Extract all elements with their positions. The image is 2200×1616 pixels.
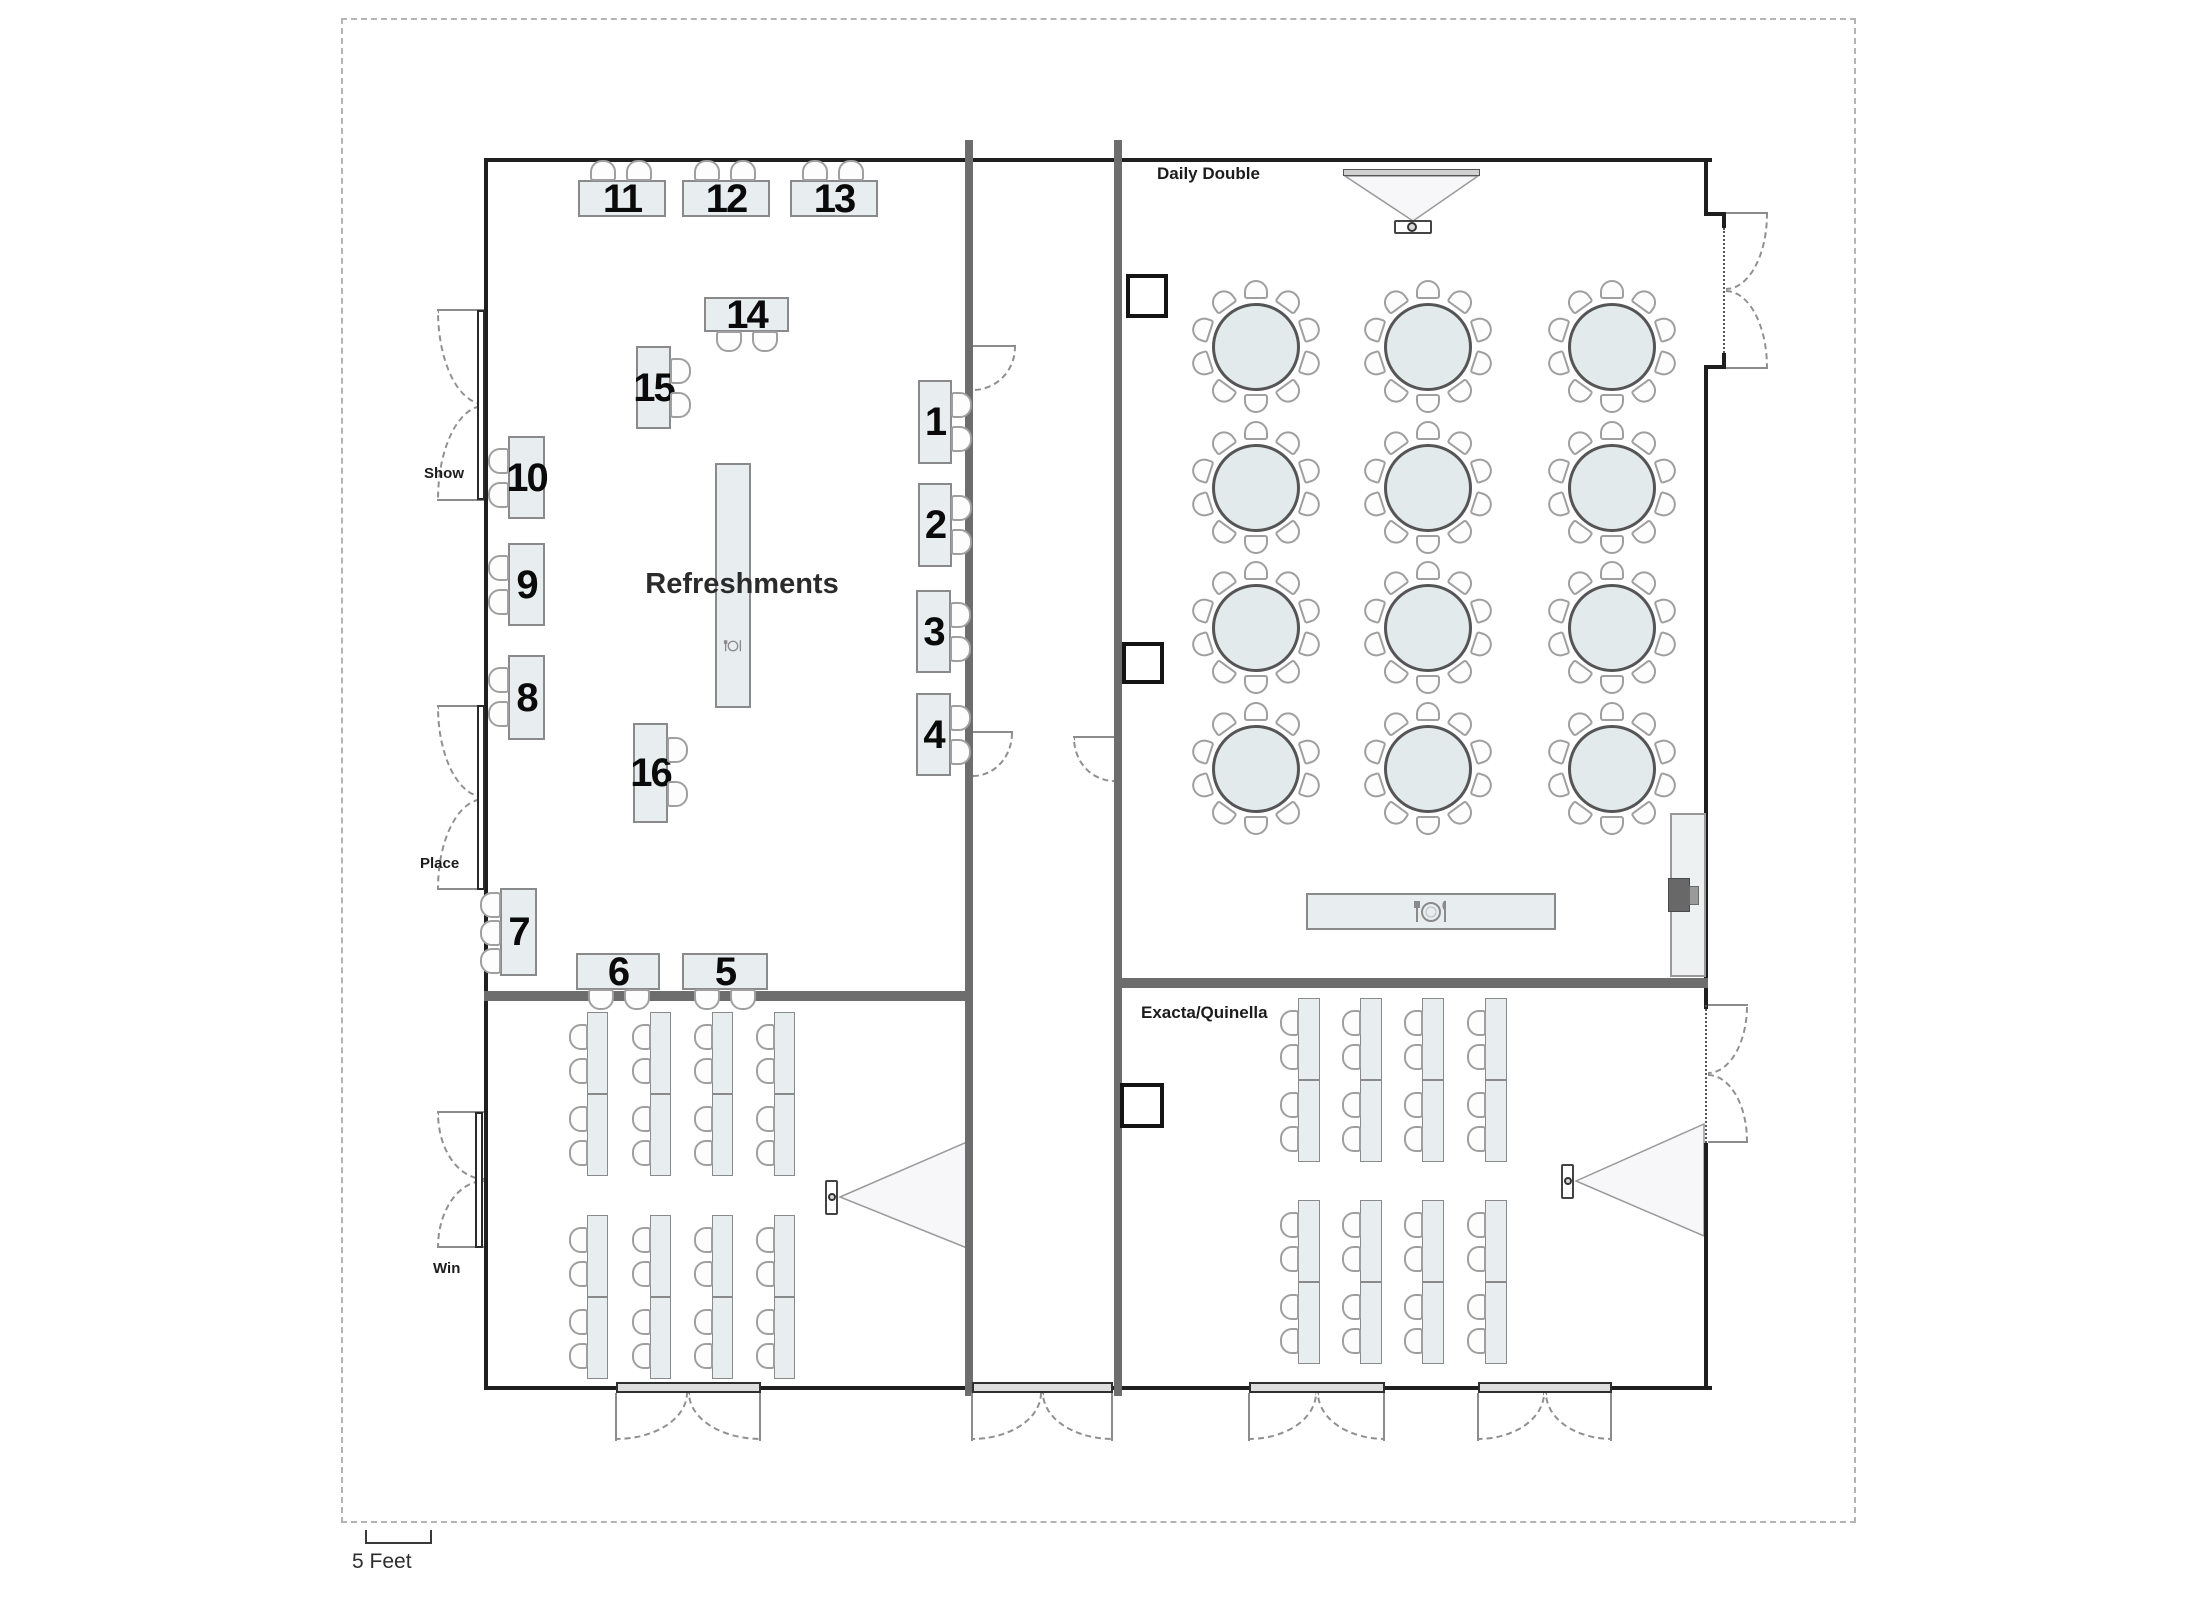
chair [730, 160, 756, 181]
chair [1404, 1246, 1423, 1272]
chair [632, 1058, 651, 1084]
chair [667, 781, 688, 807]
door-label-show: Show [424, 465, 464, 482]
projector-lens-icon [1564, 1177, 1572, 1185]
chair [632, 1343, 651, 1369]
wall-service-box [1126, 274, 1168, 318]
chair [1416, 280, 1440, 299]
round-table [1384, 584, 1472, 672]
classroom-table [1360, 1282, 1382, 1364]
projection-screen [1343, 169, 1480, 176]
chair [1404, 1328, 1423, 1354]
chair [1600, 280, 1624, 299]
chair [632, 1309, 651, 1335]
chair [1342, 1212, 1361, 1238]
chair [951, 495, 972, 521]
double-door [477, 705, 485, 890]
classroom-table [1485, 1200, 1507, 1282]
projector-beam [1576, 1124, 1704, 1236]
chair [802, 160, 828, 181]
exhibit-table-16: 16 [633, 723, 668, 823]
classroom-table [650, 1094, 671, 1176]
chair [1280, 1246, 1299, 1272]
double-door [475, 1112, 483, 1248]
chair [1404, 1212, 1423, 1238]
chair [1404, 1126, 1423, 1152]
chair [632, 1024, 651, 1050]
chair [1600, 421, 1624, 440]
chair [756, 1227, 775, 1253]
place-setting-icon [1412, 899, 1450, 925]
refreshments-label: Refreshments [637, 568, 847, 601]
chair [1342, 1092, 1361, 1118]
chair [1342, 1294, 1361, 1320]
chair [1280, 1328, 1299, 1354]
double-door [1249, 1382, 1385, 1393]
door-leaf-line [1708, 1141, 1748, 1143]
table-number: 14 [726, 295, 767, 335]
table-number: 6 [608, 952, 628, 992]
chair [1600, 561, 1624, 580]
exhibit-table-6: 6 [576, 953, 660, 990]
chair [1404, 1092, 1423, 1118]
chair [1467, 1294, 1486, 1320]
classroom-table [774, 1094, 795, 1176]
classroom-table [712, 1297, 733, 1379]
chair [950, 602, 971, 628]
classroom-table [1360, 1200, 1382, 1282]
chair [488, 701, 509, 727]
door-label-win: Win [433, 1260, 460, 1277]
classroom-table [1360, 1080, 1382, 1162]
classroom-table [587, 1012, 608, 1094]
chair [756, 1309, 775, 1335]
classroom-table [1298, 998, 1320, 1080]
chair [694, 989, 720, 1010]
round-table [1384, 303, 1472, 391]
chair [1467, 1328, 1486, 1354]
floor-plan: 11121314151098716651234 Refreshments Sho… [0, 0, 2200, 1616]
chair [488, 555, 509, 581]
classroom-table [1485, 998, 1507, 1080]
chair [950, 705, 971, 731]
round-table [1568, 725, 1656, 813]
place-setting-icon [723, 637, 743, 655]
chair [694, 1261, 713, 1287]
table-number: 11 [603, 179, 641, 219]
chair [667, 737, 688, 763]
classroom-table [587, 1094, 608, 1176]
chair [1244, 421, 1268, 440]
chair [632, 1261, 651, 1287]
chair [1342, 1246, 1361, 1272]
chair [838, 160, 864, 181]
chair [694, 1140, 713, 1166]
chair [756, 1140, 775, 1166]
exhibit-table-3: 3 [916, 590, 951, 673]
chair [569, 1106, 588, 1132]
chair [1467, 1246, 1486, 1272]
chair [951, 529, 972, 555]
round-table [1568, 584, 1656, 672]
classroom-table [1422, 1282, 1444, 1364]
wall-service-box [1120, 1083, 1164, 1128]
chair [756, 1058, 775, 1084]
table-number: 12 [706, 179, 747, 219]
projector-beam [1345, 176, 1478, 221]
chair [1467, 1212, 1486, 1238]
classroom-table [587, 1297, 608, 1379]
chair [1416, 561, 1440, 580]
chair [569, 1058, 588, 1084]
double-door [616, 1382, 761, 1393]
chair [756, 1261, 775, 1287]
classroom-table [712, 1215, 733, 1297]
classroom-table [650, 1215, 671, 1297]
chair [488, 589, 509, 615]
classroom-table [650, 1012, 671, 1094]
classroom-table [1485, 1282, 1507, 1364]
classroom-table [587, 1215, 608, 1297]
chair [951, 392, 972, 418]
classroom-table [1422, 1080, 1444, 1162]
table-number: 5 [715, 952, 735, 992]
room-label-exacta-quinella: Exacta/Quinella [1141, 1003, 1268, 1023]
chair [480, 948, 501, 974]
classroom-table [1298, 1080, 1320, 1162]
chair [1280, 1212, 1299, 1238]
round-table [1212, 444, 1300, 532]
chair [1404, 1010, 1423, 1036]
table-number: 10 [506, 458, 547, 498]
double-door [972, 1382, 1113, 1393]
table-number: 2 [925, 505, 945, 545]
exhibit-table-1: 1 [918, 380, 952, 464]
chair [1244, 561, 1268, 580]
chair [569, 1343, 588, 1369]
buffet-table [1306, 893, 1556, 930]
chair [756, 1024, 775, 1050]
chair [1416, 421, 1440, 440]
chair [694, 1309, 713, 1335]
chair [632, 1227, 651, 1253]
classroom-table [1298, 1200, 1320, 1282]
podium-chair-icon [1689, 886, 1699, 905]
chair [1467, 1126, 1486, 1152]
table-number: 16 [630, 753, 671, 793]
classroom-table [774, 1012, 795, 1094]
scale-label: 5 Feet [352, 1550, 452, 1574]
chair [730, 989, 756, 1010]
classroom-table [774, 1297, 795, 1379]
chair [1416, 702, 1440, 721]
chair [488, 482, 509, 508]
wall [484, 158, 1712, 162]
chair [1404, 1044, 1423, 1070]
chair [1280, 1010, 1299, 1036]
chair [1600, 702, 1624, 721]
exhibit-table-2: 2 [918, 483, 952, 567]
projection-beams-layer [0, 0, 2200, 1616]
chair [1342, 1044, 1361, 1070]
chair [632, 1106, 651, 1132]
classroom-table [712, 1094, 733, 1176]
classroom-table [1360, 998, 1382, 1080]
chair [569, 1140, 588, 1166]
chair [716, 331, 742, 352]
classroom-table [712, 1012, 733, 1094]
chair [1244, 280, 1268, 299]
round-table [1568, 303, 1656, 391]
door-label-place: Place [420, 855, 459, 872]
chair [752, 331, 778, 352]
classroom-table [650, 1297, 671, 1379]
scale-bar [365, 1530, 432, 1544]
chair [694, 1106, 713, 1132]
exhibit-table-11: 11 [578, 180, 666, 217]
chair [488, 448, 509, 474]
chair [950, 739, 971, 765]
table-number: 7 [508, 912, 528, 952]
round-table [1212, 303, 1300, 391]
table-number: 9 [516, 565, 536, 605]
chair [1404, 1294, 1423, 1320]
round-table [1568, 444, 1656, 532]
chair [670, 392, 691, 418]
projector-beam [840, 1142, 967, 1248]
chair [624, 989, 650, 1010]
exhibit-table-10: 10 [508, 436, 545, 519]
partition-wall [965, 140, 973, 1396]
chair [1467, 1092, 1486, 1118]
chair [756, 1343, 775, 1369]
room-label-daily-double: Daily Double [1157, 164, 1260, 184]
exhibit-table-12: 12 [682, 180, 770, 217]
partition-wall [1114, 140, 1122, 1396]
chair [1280, 1044, 1299, 1070]
classroom-table [1298, 1282, 1320, 1364]
classroom-table [1485, 1080, 1507, 1162]
partition-wall [1122, 978, 1708, 988]
chair [480, 920, 501, 946]
wall [1704, 1143, 1708, 1390]
chair [632, 1140, 651, 1166]
round-table [1212, 725, 1300, 813]
chair [694, 1343, 713, 1369]
exhibit-table-8: 8 [508, 655, 545, 740]
projector-lens-icon [1407, 222, 1417, 232]
chair [1342, 1126, 1361, 1152]
chair [1467, 1044, 1486, 1070]
exhibit-table-13: 13 [790, 180, 878, 217]
chair [756, 1106, 775, 1132]
chair [569, 1024, 588, 1050]
chair [1280, 1294, 1299, 1320]
chair [1467, 1010, 1486, 1036]
classroom-table [774, 1215, 795, 1297]
round-table [1212, 584, 1300, 672]
wall [1704, 158, 1708, 216]
chair [1280, 1092, 1299, 1118]
chair [694, 1058, 713, 1084]
chair [1280, 1126, 1299, 1152]
chair [1342, 1010, 1361, 1036]
round-table [1384, 444, 1472, 532]
table-number: 15 [633, 368, 674, 408]
chair [1244, 702, 1268, 721]
exhibit-table-7: 7 [500, 888, 537, 976]
podium-icon [1668, 878, 1690, 912]
chair [1342, 1328, 1361, 1354]
chair [569, 1227, 588, 1253]
chair [588, 989, 614, 1010]
chair [626, 160, 652, 181]
chair [590, 160, 616, 181]
double-door [1478, 1382, 1612, 1393]
exhibit-table-15: 15 [636, 346, 671, 429]
chair [694, 1024, 713, 1050]
table-number: 13 [814, 179, 855, 219]
wall-service-box [1122, 642, 1164, 684]
door-leaf-line [1726, 367, 1768, 369]
chair [488, 667, 509, 693]
table-number: 8 [516, 678, 536, 718]
exhibit-table-14: 14 [704, 297, 789, 332]
chair [569, 1309, 588, 1335]
table-number: 4 [923, 715, 943, 755]
chair [951, 426, 972, 452]
projector-lens-icon [828, 1193, 836, 1201]
chair [950, 636, 971, 662]
chair [694, 1227, 713, 1253]
chair [569, 1261, 588, 1287]
classroom-table [1422, 998, 1444, 1080]
exhibit-table-5: 5 [682, 953, 768, 990]
round-table [1384, 725, 1472, 813]
table-number: 1 [925, 402, 945, 442]
table-number: 3 [923, 612, 943, 652]
exhibit-table-4: 4 [916, 693, 951, 776]
chair [694, 160, 720, 181]
chair [480, 892, 501, 918]
double-door [477, 310, 485, 500]
exhibit-table-9: 9 [508, 543, 545, 626]
chair [670, 358, 691, 384]
classroom-table [1422, 1200, 1444, 1282]
